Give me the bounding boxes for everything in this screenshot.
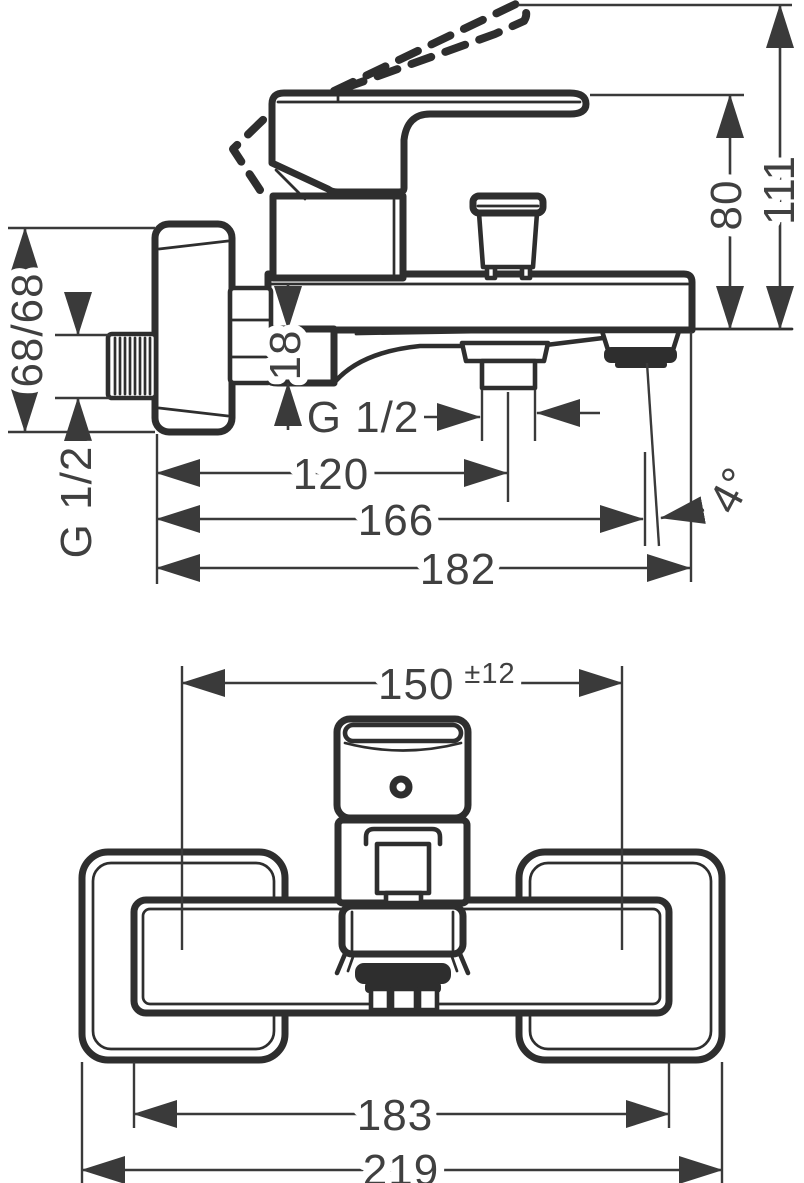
handle-lever	[272, 93, 586, 192]
label-inlet-thread: G 1/2	[52, 446, 101, 559]
label-166: 166	[358, 496, 434, 545]
label-150: 150±12	[378, 658, 516, 709]
spout-front-block	[342, 906, 463, 954]
plan-view	[82, 719, 722, 1060]
spout-body	[268, 274, 692, 330]
label-4deg: 4°	[699, 459, 763, 521]
label-183: 183	[357, 1091, 433, 1140]
spout-bottom-near-edge	[546, 338, 603, 345]
cartridge-housing	[273, 196, 403, 278]
collar-tab	[386, 893, 421, 903]
wall-escutcheon-side	[155, 224, 232, 432]
label-outlet-thread: G 1/2	[307, 393, 420, 442]
shower-outlet-pipe	[482, 361, 535, 388]
diverter-knob-body	[479, 213, 537, 267]
label-18: 18	[261, 330, 310, 381]
aerator-notch-left	[371, 989, 389, 1010]
shower-outlet-flange	[462, 343, 548, 361]
technical-drawing-canvas: 111 80 68/68 G 1/2 18 G 1/2 120 166 182 …	[0, 0, 804, 1183]
aerator-side-lip	[615, 361, 667, 368]
spout-underside-curve	[334, 346, 462, 383]
bath-mixer-dimension-drawing: 111 80 68/68 G 1/2 18 G 1/2 120 166 182 …	[0, 0, 804, 1183]
label-150-tolerance: ±12	[464, 658, 515, 690]
aerator-notch-center	[392, 989, 416, 1010]
aerator-angle-line	[647, 363, 659, 546]
label-182: 182	[420, 545, 496, 594]
label-150-value: 150	[378, 660, 454, 709]
aerator-notch-right	[419, 989, 437, 1010]
dimension-leader-4deg	[661, 510, 704, 518]
label-120: 120	[293, 450, 369, 499]
collar-neck	[377, 844, 429, 893]
aerator-front-band	[355, 963, 451, 984]
side-view	[108, 4, 692, 546]
diverter-knob-cap	[473, 196, 543, 213]
aerator-side-face	[604, 347, 677, 363]
handle-knob-cap-slot	[345, 725, 461, 741]
label-111: 111	[755, 155, 804, 225]
label-68-68: 68/68	[3, 272, 52, 387]
label-80: 80	[702, 180, 751, 231]
label-219: 219	[363, 1146, 439, 1183]
